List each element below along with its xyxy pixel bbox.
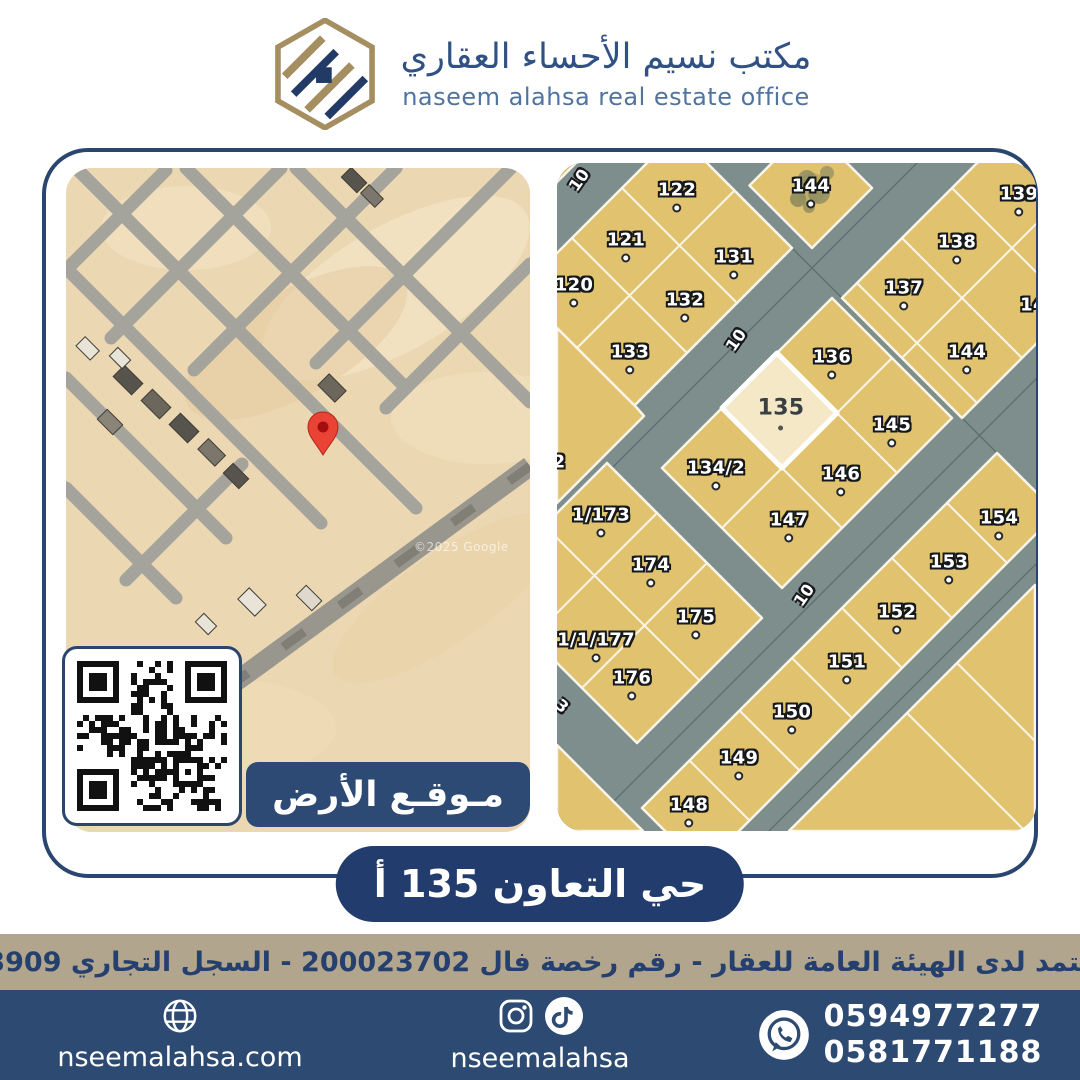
plot-label-14: 14 bbox=[1020, 295, 1036, 316]
phone-numbers[interactable]: 0594977277 0581771188 bbox=[824, 999, 1043, 1071]
social-handle[interactable]: nseemalahsa bbox=[450, 1043, 629, 1074]
plot-label-136: 136 bbox=[813, 347, 851, 368]
website-column: nseemalahsa.com bbox=[0, 990, 360, 1080]
plot-marker-dot bbox=[691, 631, 700, 640]
tiktok-icon bbox=[544, 996, 584, 1036]
plot-marker-dot bbox=[787, 726, 796, 735]
qr-code[interactable] bbox=[71, 655, 233, 817]
plot-marker-dot bbox=[962, 366, 971, 375]
parcel-map-image bbox=[557, 163, 1036, 831]
social-column: nseemalahsa bbox=[360, 990, 720, 1080]
plot-marker-dot bbox=[711, 482, 720, 491]
plot-label-1/1/177: 1/1/177 bbox=[557, 630, 635, 651]
plot-marker-dot bbox=[776, 424, 785, 433]
plot-marker-dot bbox=[627, 692, 636, 701]
plot-marker-dot bbox=[734, 772, 743, 781]
plot-marker-dot bbox=[899, 302, 908, 311]
plot-label-1/173: 1/173 bbox=[572, 505, 630, 526]
plot-marker-dot bbox=[892, 626, 901, 635]
plot-label-144: 144 bbox=[948, 342, 986, 363]
district-banner: حي التعاون 135 أ bbox=[336, 846, 744, 922]
location-banner-label: مـوقـع الأرض bbox=[272, 775, 504, 815]
qr-card bbox=[62, 646, 242, 826]
plot-label-2: 2 bbox=[557, 452, 565, 473]
plot-label-147: 147 bbox=[770, 510, 808, 531]
plot-label-154: 154 bbox=[980, 508, 1018, 529]
footer: nseemalahsa.com nseemalahsa 0594977277 bbox=[0, 990, 1080, 1080]
plot-label-146: 146 bbox=[822, 464, 860, 485]
plot-label-176: 176 bbox=[613, 668, 651, 689]
plot-label-121: 121 bbox=[607, 230, 645, 251]
social-icons bbox=[496, 996, 584, 1036]
accreditation-strip: مسوق معتمد لدى الهيئة العامة للعقار - رق… bbox=[0, 934, 1080, 990]
plot-marker-dot bbox=[729, 271, 738, 280]
plot-marker-dot bbox=[596, 529, 605, 538]
plot-label-132: 132 bbox=[666, 290, 704, 311]
plot-label-138: 138 bbox=[938, 232, 976, 253]
company-title-english: naseem alahsa real estate office bbox=[402, 83, 810, 111]
plot-marker-dot bbox=[625, 366, 634, 375]
plot-label-134/2: 134/2 bbox=[687, 458, 745, 479]
plot-marker-dot bbox=[842, 676, 851, 685]
plot-marker-dot bbox=[887, 439, 896, 448]
phone-number-1[interactable]: 0594977277 bbox=[824, 999, 1043, 1035]
company-title-arabic: مكتب نسيم الأحساء العقاري bbox=[401, 37, 812, 77]
plot-label-137: 137 bbox=[885, 278, 923, 299]
plot-label-120: 120 bbox=[557, 275, 593, 296]
whatsapp-icon bbox=[758, 1009, 810, 1061]
header: مكتب نسيم الأحساء العقاري naseem alahsa … bbox=[0, 0, 1080, 148]
plot-label-133: 133 bbox=[611, 342, 649, 363]
plot-label-148: 148 bbox=[670, 795, 708, 816]
plot-label-151: 151 bbox=[828, 652, 866, 673]
instagram-icon bbox=[496, 996, 536, 1036]
plot-label-174: 174 bbox=[632, 555, 670, 576]
plot-label-153: 153 bbox=[930, 552, 968, 573]
real-estate-flyer: { "header": { "title_ar": "مكتب نسيم الأ… bbox=[0, 0, 1080, 1080]
plot-label-149: 149 bbox=[720, 748, 758, 769]
plot-label-150: 150 bbox=[773, 702, 811, 723]
plot-marker-dot bbox=[784, 534, 793, 543]
plot-label-144: 144 bbox=[792, 176, 830, 197]
parcel-map: 1221441391211311381201321371413313614413… bbox=[557, 163, 1036, 831]
plot-marker-dot bbox=[994, 532, 1003, 541]
plot-label-175: 175 bbox=[677, 607, 715, 628]
phone-number-2[interactable]: 0581771188 bbox=[824, 1035, 1043, 1071]
plot-marker-dot bbox=[827, 371, 836, 380]
plot-marker-dot bbox=[621, 254, 630, 263]
plot-marker-dot bbox=[646, 579, 655, 588]
globe-icon bbox=[161, 997, 199, 1035]
accreditation-text: مسوق معتمد لدى الهيئة العامة للعقار - رق… bbox=[0, 947, 1080, 978]
plot-marker-dot bbox=[1014, 208, 1023, 217]
plot-marker-dot bbox=[806, 200, 815, 209]
company-logo-icon bbox=[269, 18, 381, 130]
plot-marker-dot bbox=[944, 576, 953, 585]
plot-marker-dot bbox=[672, 204, 681, 213]
plot-marker-dot bbox=[836, 488, 845, 497]
phone-column: 0594977277 0581771188 bbox=[720, 990, 1080, 1080]
plot-label-145: 145 bbox=[873, 415, 911, 436]
location-banner: مـوقـع الأرض bbox=[246, 762, 530, 827]
plot-marker-dot bbox=[569, 299, 578, 308]
plot-marker-dot bbox=[680, 314, 689, 323]
website-url[interactable]: nseemalahsa.com bbox=[57, 1042, 302, 1073]
map-watermark: ©2025 Google bbox=[414, 540, 509, 554]
plot-label-139: 139 bbox=[1000, 184, 1036, 205]
company-title-block: مكتب نسيم الأحساء العقاري naseem alahsa … bbox=[401, 37, 812, 111]
plot-marker-dot bbox=[592, 654, 601, 663]
plot-marker-dot bbox=[684, 819, 693, 828]
plot-label-135: 135 bbox=[758, 396, 805, 421]
plot-label-152: 152 bbox=[878, 602, 916, 623]
plot-label-122: 122 bbox=[658, 180, 696, 201]
plot-label-131: 131 bbox=[715, 247, 753, 268]
plot-marker-dot bbox=[952, 256, 961, 265]
